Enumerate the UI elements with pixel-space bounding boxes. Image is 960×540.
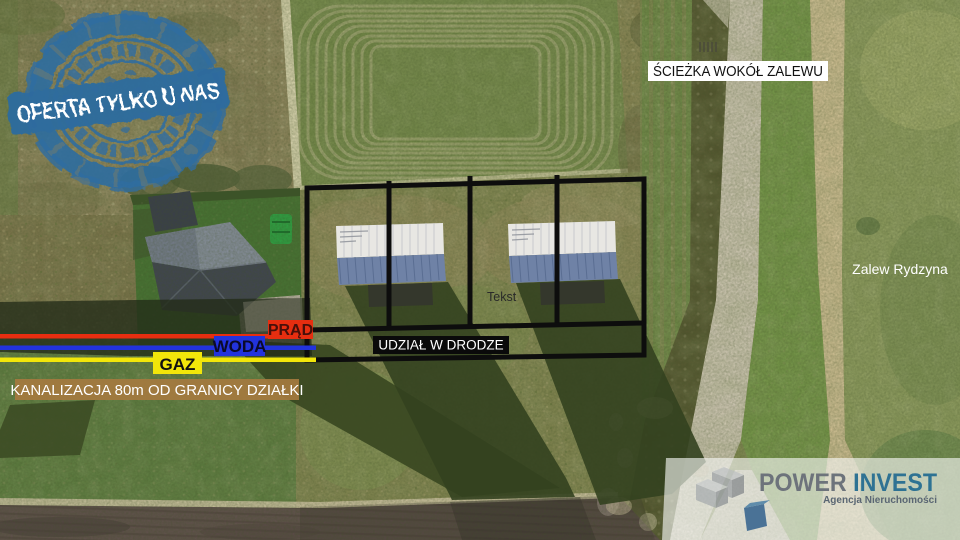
- svg-text:KANALIZACJA 80m OD GRANICY DZI: KANALIZACJA 80m OD GRANICY DZIAŁKI: [10, 382, 303, 399]
- svg-text:PRĄD: PRĄD: [268, 322, 313, 339]
- svg-text:GAZ: GAZ: [160, 355, 196, 374]
- svg-text:UDZIAŁ W DRODZE: UDZIAŁ W DRODZE: [378, 338, 503, 353]
- svg-text:ŚCIEŻKA WOKÓŁ ZALEWU: ŚCIEŻKA WOKÓŁ ZALEWU: [653, 62, 823, 80]
- svg-text:Tekst: Tekst: [487, 290, 517, 304]
- svg-text:WODA: WODA: [213, 337, 267, 356]
- svg-text:Agencja Nieruchomości: Agencja Nieruchomości: [823, 495, 937, 506]
- svg-text:Zalew Rydzyna: Zalew Rydzyna: [852, 261, 948, 277]
- svg-text:POWER INVEST: POWER INVEST: [759, 469, 937, 497]
